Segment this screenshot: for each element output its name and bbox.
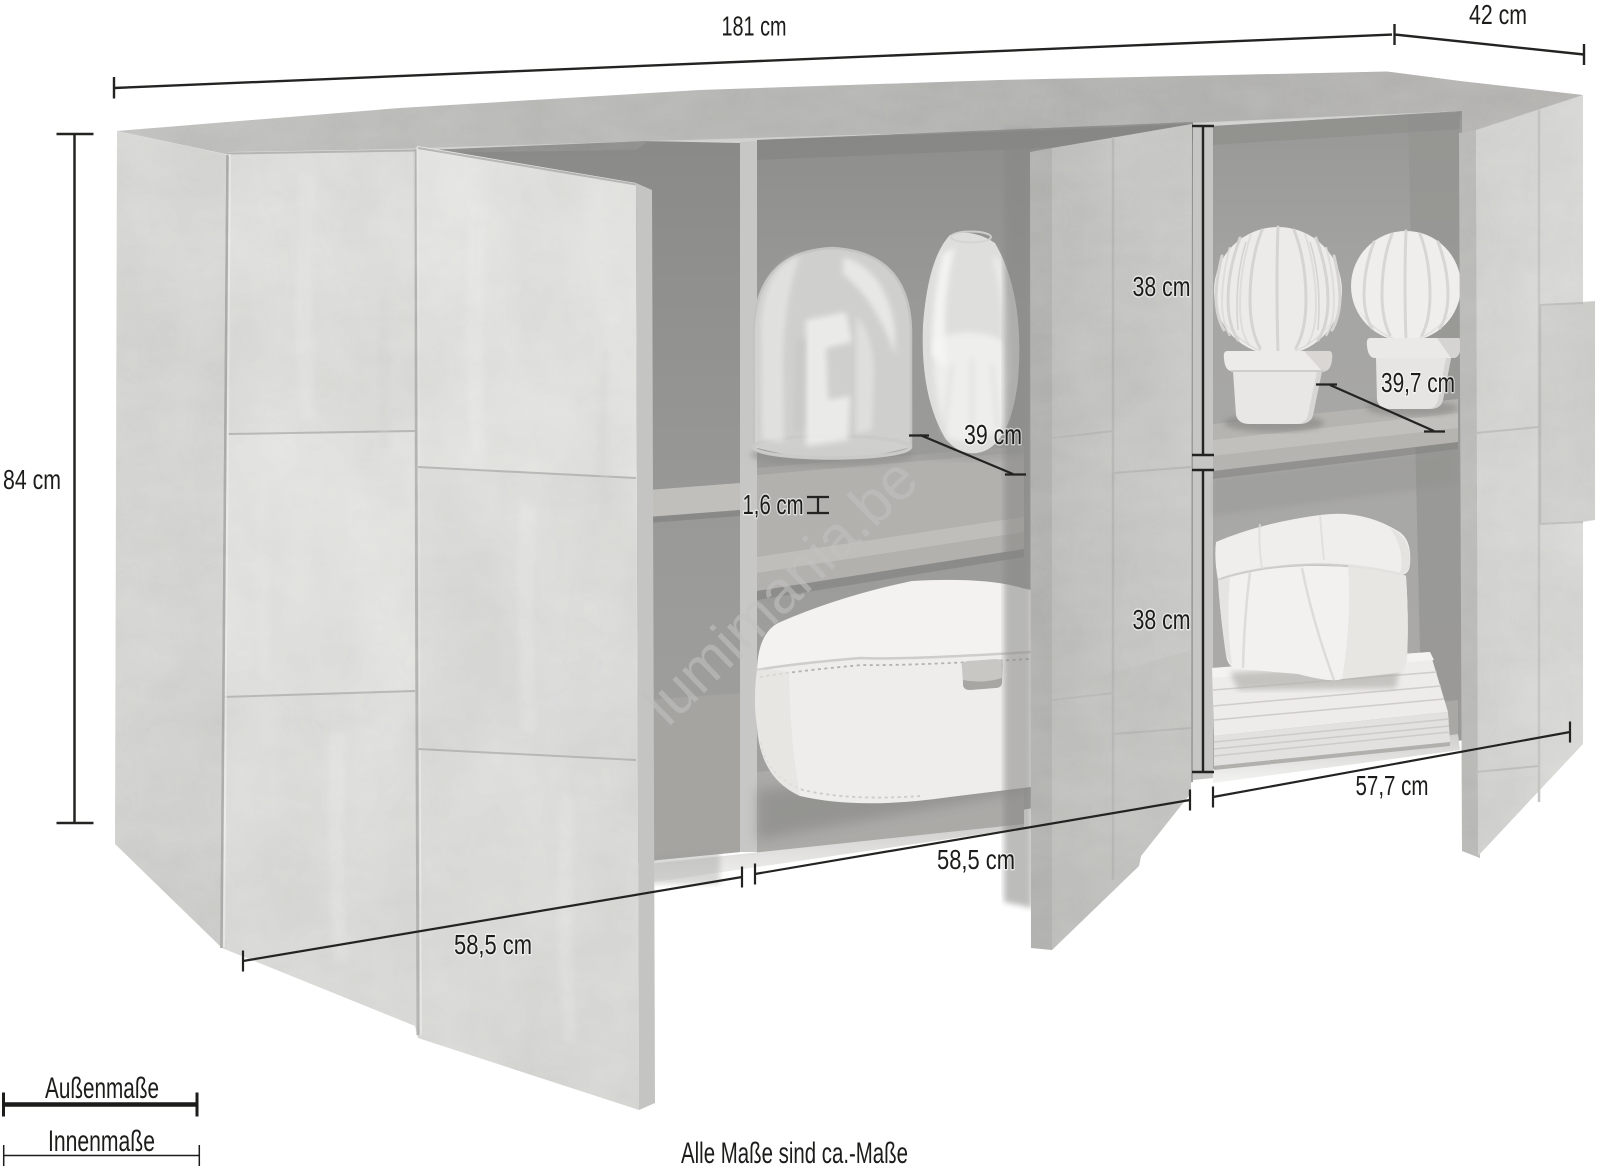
svg-text:38 cm: 38 cm — [1133, 604, 1191, 635]
svg-text:57,7 cm: 57,7 cm — [1356, 770, 1429, 801]
svg-text:Alle Maße sind ca.-Maße: Alle Maße sind ca.-Maße — [681, 1137, 908, 1169]
svg-text:38 cm: 38 cm — [1133, 271, 1191, 302]
svg-text:39 cm: 39 cm — [964, 419, 1022, 450]
svg-text:58,5 cm: 58,5 cm — [937, 844, 1015, 875]
svg-text:Außenmaße: Außenmaße — [45, 1072, 159, 1105]
svg-text:181 cm: 181 cm — [722, 11, 787, 42]
svg-text:Innenmaße: Innenmaße — [48, 1125, 155, 1158]
svg-text:39,7 cm: 39,7 cm — [1381, 367, 1455, 398]
svg-text:84 cm: 84 cm — [3, 464, 61, 495]
svg-text:1,6 cm: 1,6 cm — [743, 489, 804, 520]
svg-text:42 cm: 42 cm — [1469, 0, 1527, 30]
svg-text:58,5 cm: 58,5 cm — [454, 929, 532, 960]
